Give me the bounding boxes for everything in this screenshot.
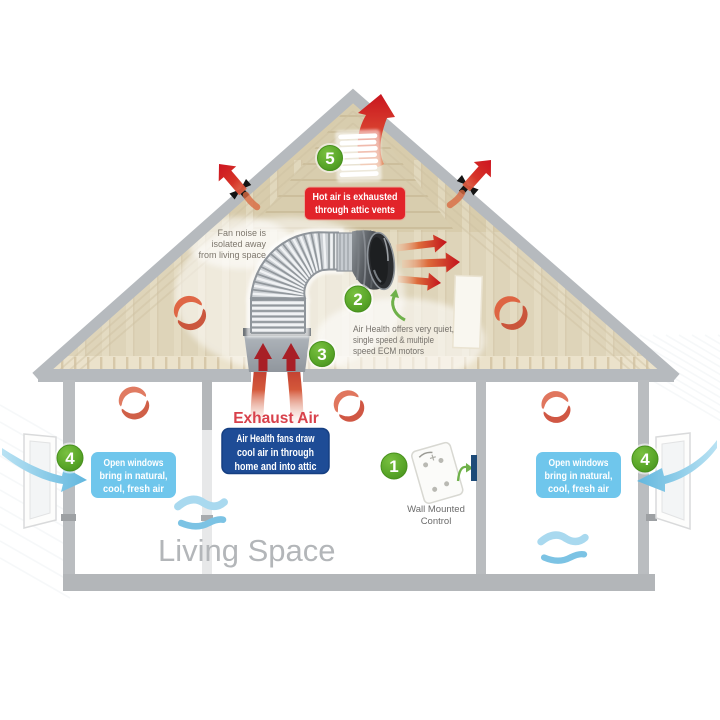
svg-text:Open windows: Open windows (549, 458, 609, 469)
svg-text:bring in natural,: bring in natural, (100, 471, 168, 482)
svg-text:Living Space: Living Space (158, 533, 336, 568)
svg-text:Hot air is exhausted: Hot air is exhausted (313, 191, 398, 203)
svg-text:5: 5 (325, 149, 334, 168)
svg-text:cool, fresh air: cool, fresh air (548, 484, 609, 495)
svg-text:single speed & multiple: single speed & multiple (353, 335, 434, 346)
svg-text:Wall Mounted: Wall Mounted (407, 504, 465, 515)
svg-text:through attic vents: through attic vents (315, 204, 395, 216)
svg-text:Open windows: Open windows (104, 458, 164, 469)
svg-text:1: 1 (389, 457, 398, 476)
svg-text:speed ECM motors: speed ECM motors (353, 346, 424, 357)
svg-text:from living space: from living space (198, 250, 266, 260)
svg-text:Air Health fans draw: Air Health fans draw (237, 433, 315, 445)
svg-text:3: 3 (317, 345, 326, 364)
svg-text:Exhaust Air: Exhaust Air (233, 410, 319, 427)
svg-text:isolated away: isolated away (211, 239, 266, 249)
svg-text:home and into attic: home and into attic (235, 461, 317, 473)
svg-text:2: 2 (353, 290, 362, 309)
svg-text:Air Health offers very quiet,: Air Health offers very quiet, (353, 324, 454, 335)
svg-text:bring in natural,: bring in natural, (545, 471, 613, 482)
svg-text:4: 4 (640, 450, 650, 469)
svg-text:Fan noise is: Fan noise is (217, 228, 266, 238)
svg-text:Control: Control (421, 516, 452, 527)
svg-text:cool air in through: cool air in through (237, 447, 314, 459)
svg-text:4: 4 (65, 449, 75, 468)
svg-text:cool, fresh air: cool, fresh air (103, 484, 164, 495)
